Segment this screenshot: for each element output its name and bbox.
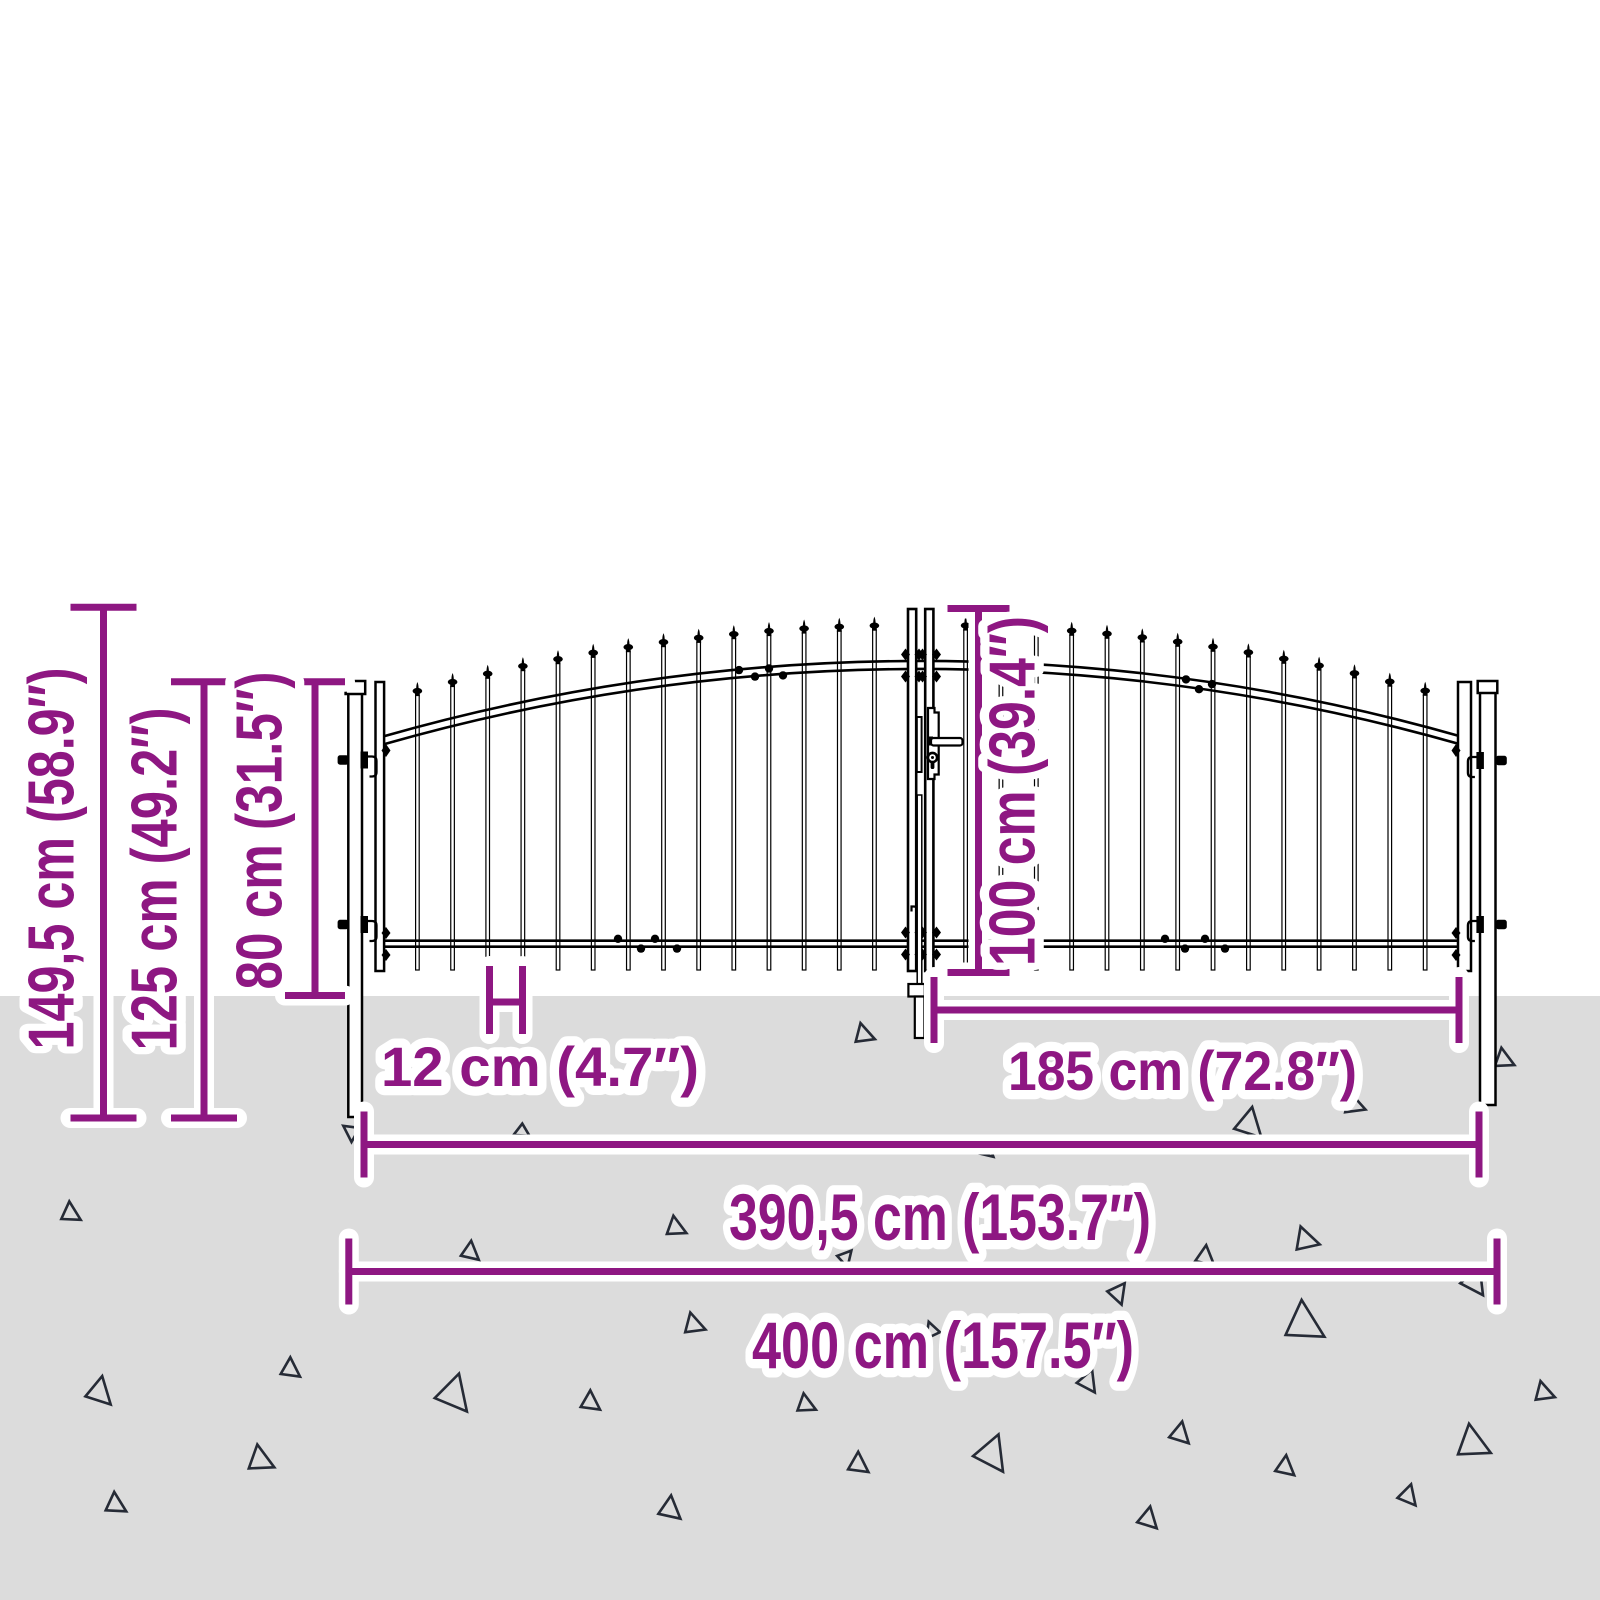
svg-text:80 cm (31.5″): 80 cm (31.5″) bbox=[223, 672, 296, 990]
svg-text:390,5 cm (153.7″): 390,5 cm (153.7″) bbox=[729, 1180, 1151, 1254]
svg-text:185 cm (72.8″): 185 cm (72.8″) bbox=[1008, 1039, 1357, 1102]
svg-text:400 cm (157.5″): 400 cm (157.5″) bbox=[752, 1308, 1134, 1382]
svg-text:100 cm (39.4″): 100 cm (39.4″) bbox=[975, 616, 1048, 966]
svg-text:149,5 cm (58.9″): 149,5 cm (58.9″) bbox=[15, 668, 88, 1050]
svg-text:125 cm (49.2″): 125 cm (49.2″) bbox=[118, 708, 191, 1051]
svg-text:12 cm (4.7″): 12 cm (4.7″) bbox=[381, 1035, 699, 1098]
